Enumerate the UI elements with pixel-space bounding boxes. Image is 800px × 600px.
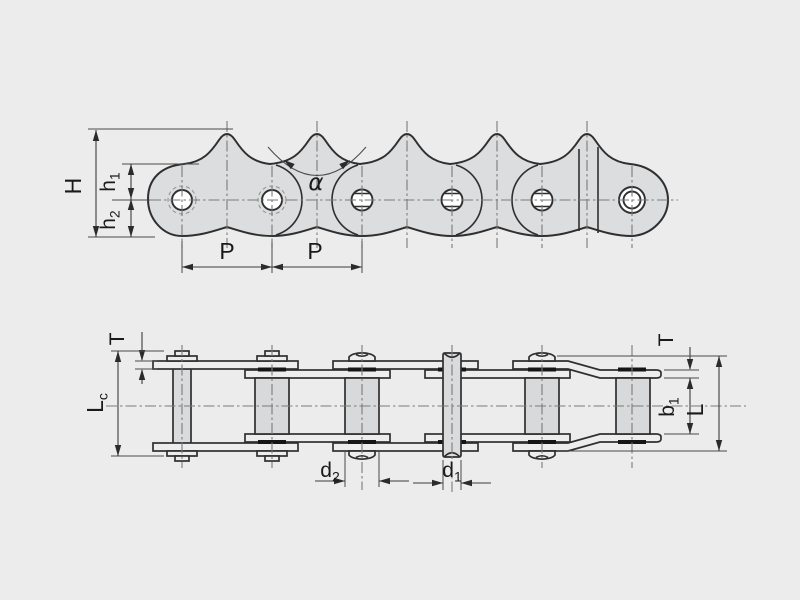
drawing-background (0, 0, 800, 600)
label-T-right: T (655, 333, 678, 346)
label-alpha: α (308, 170, 323, 196)
outer-plate-strip (153, 443, 298, 451)
label-H: H (60, 178, 86, 195)
label-pitch-left: P (219, 238, 234, 264)
technical-drawing: H h1 h2 P P (0, 0, 800, 600)
label-pitch-right: P (307, 238, 322, 264)
label-T-left: T (106, 332, 129, 345)
chain-silhouette (148, 134, 668, 236)
label-L: L (682, 403, 708, 416)
